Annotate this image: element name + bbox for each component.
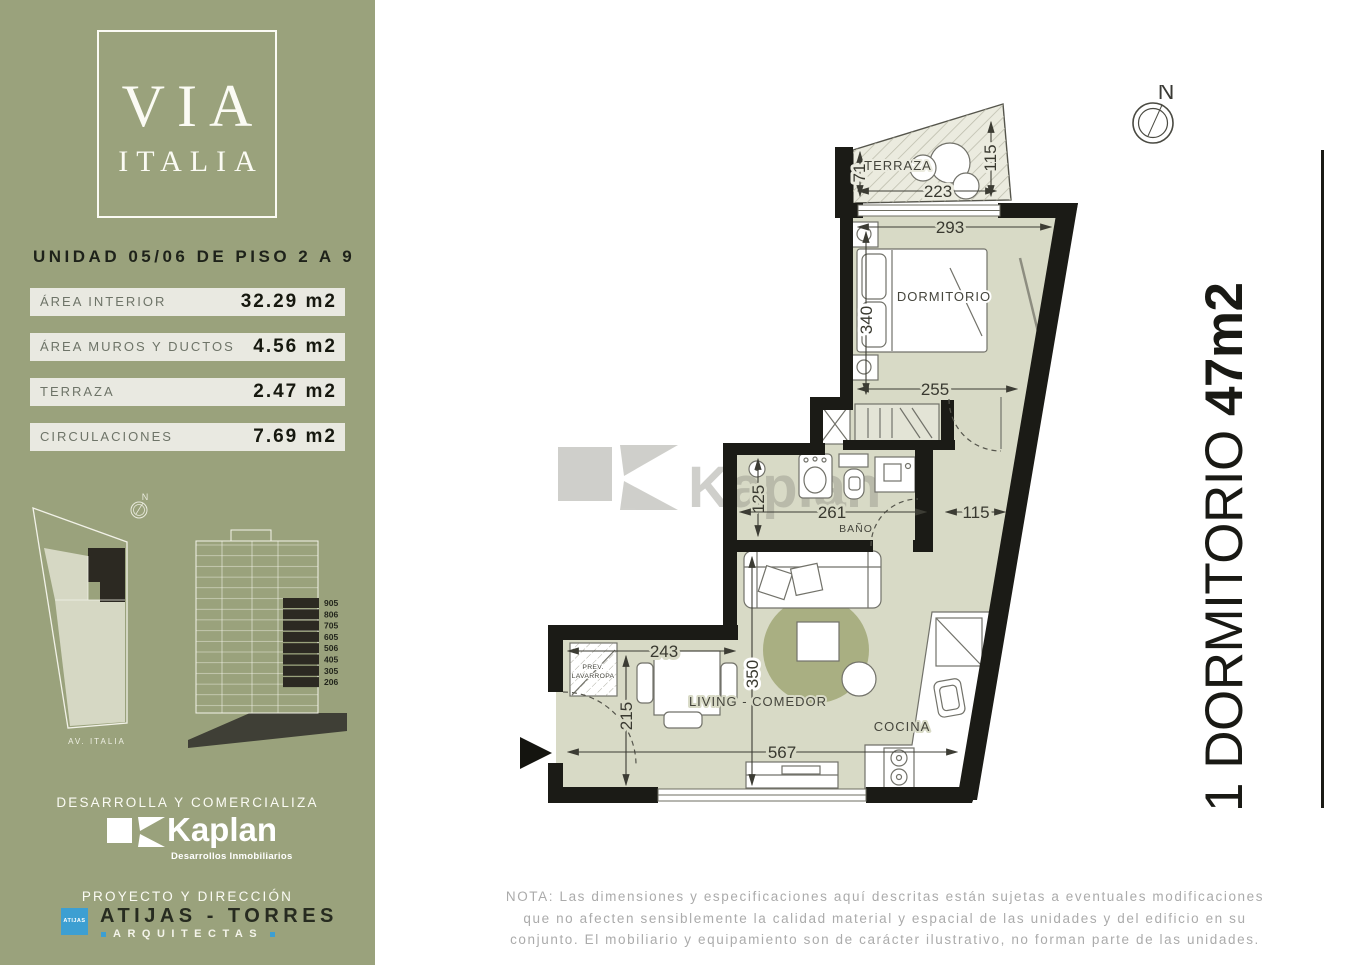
dim-hall-width: 115	[962, 503, 989, 522]
label-prev2: LAVARROPA	[572, 673, 615, 680]
ground	[188, 713, 347, 748]
dim-living-width: 567	[768, 743, 796, 762]
legal-note: NOTA: Las dimensiones y especificaciones…	[445, 886, 1325, 951]
via-italia-logo: VIA ITALIA	[97, 30, 277, 218]
logo-line1: VIA	[99, 72, 275, 141]
floor-label: 405	[324, 655, 338, 665]
atijas-badge: ATIJAS	[61, 908, 88, 935]
label-living: LIVING - COMEDOR	[689, 694, 827, 709]
dim-dorm-inner: 255	[921, 380, 949, 399]
label-prev1: PREV.	[582, 664, 603, 671]
kaplan-tagline: Desarrollos Inmobiliarios	[171, 851, 293, 862]
north-compass-icon: N	[1133, 85, 1174, 143]
architects-subtitle: ARQUITECTAS	[113, 928, 263, 940]
street-label: AV. ITALIA	[68, 737, 126, 746]
kaplan-logo-icon	[105, 814, 165, 854]
area-row-muros: ÁREA MUROS Y DUCTOS 4.56 m2	[30, 333, 345, 361]
building-section: 905 806 705 605 506 405 305 206	[188, 530, 347, 748]
floor-label: 305	[324, 666, 338, 676]
blue-square-icon	[270, 932, 275, 937]
area-row-interior: ÁREA INTERIOR 32.29 m2	[30, 288, 345, 316]
unit-type-label: 1 DORMITORIO	[1195, 416, 1254, 812]
entry-arrow-icon	[520, 737, 552, 769]
label-dormitorio: DORMITORIO	[897, 289, 991, 304]
area-label: TERRAZA	[40, 378, 115, 406]
area-label: ÁREA MUROS Y DUCTOS	[40, 333, 235, 361]
location-diagrams: AV. ITALIA N	[0, 478, 375, 768]
blue-square-icon	[101, 932, 106, 937]
dim-living-depth: 350	[743, 660, 762, 688]
floor-label: 506	[324, 643, 338, 653]
mini-north-compass-icon: N	[131, 492, 148, 518]
dim-dorm-depth: 340	[857, 306, 876, 334]
area-label: ÁREA INTERIOR	[40, 288, 166, 316]
unit-area: 47m2	[1195, 282, 1254, 416]
floor-label: 705	[324, 621, 338, 631]
dim-dorm-width: 293	[936, 218, 964, 237]
dim-entry-depth: 215	[617, 702, 636, 730]
architects-heading: PROYECTO Y DIRECCIÓN	[0, 889, 375, 904]
brochure-page: VIA ITALIA UNIDAD 05/06 DE PISO 2 A 9 ÁR…	[0, 0, 1365, 965]
floor-label: 605	[324, 632, 338, 642]
site-plan: AV. ITALIA	[33, 508, 127, 746]
dim-terraza-side: 115	[981, 144, 1000, 171]
area-label: CIRCULACIONES	[40, 423, 173, 451]
developer-heading: DESARROLLA Y COMERCIALIZA	[0, 795, 375, 810]
unit-title: UNIDAD 05/06 DE PISO 2 A 9	[33, 247, 355, 267]
area-value: 2.47 m2	[253, 378, 337, 406]
unit-type-title: 1 DORMITORIO 47m2	[1253, 88, 1331, 812]
label-cocina: COCINA	[874, 719, 931, 734]
logo-line2: ITALIA	[99, 145, 275, 179]
note-line: conjunto. El mobiliario y equipamiento s…	[445, 929, 1325, 951]
note-line: que no afecten sensiblemente la calidad …	[445, 908, 1325, 930]
architects-subtitle-row: ARQUITECTAS	[101, 928, 275, 940]
architects-name: ATIJAS - TORRES	[100, 905, 338, 928]
floor-label: 206	[324, 677, 338, 687]
highlighted-unit	[88, 548, 125, 602]
sidebar: VIA ITALIA UNIDAD 05/06 DE PISO 2 A 9 ÁR…	[0, 0, 375, 965]
area-row-terraza: TERRAZA 2.47 m2	[30, 378, 345, 406]
dim-bath-width: 261	[818, 503, 846, 522]
dim-terraza-width: 223	[924, 182, 952, 201]
floor-label: 806	[324, 609, 338, 619]
north-label: N	[1158, 85, 1175, 104]
floor-plan: Kaplan	[488, 85, 1188, 815]
mini-north-label: N	[142, 492, 149, 502]
floor-label: 905	[324, 598, 338, 608]
title-rule	[1321, 150, 1324, 808]
label-terraza: TERRAZA	[864, 158, 932, 173]
dim-bath-depth: 125	[749, 485, 768, 513]
note-line: NOTA: Las dimensiones y especificaciones…	[445, 886, 1325, 908]
area-value: 7.69 m2	[253, 423, 337, 451]
kaplan-brand: Kaplan	[167, 811, 277, 849]
dim-dining: 243	[650, 642, 678, 661]
area-value: 32.29 m2	[241, 288, 337, 316]
area-value: 4.56 m2	[253, 333, 337, 361]
area-row-circulaciones: CIRCULACIONES 7.69 m2	[30, 423, 345, 451]
floor-labels: 905 806 705 605 506 405 305 206	[324, 598, 338, 687]
label-bano: BAÑO	[839, 522, 873, 535]
